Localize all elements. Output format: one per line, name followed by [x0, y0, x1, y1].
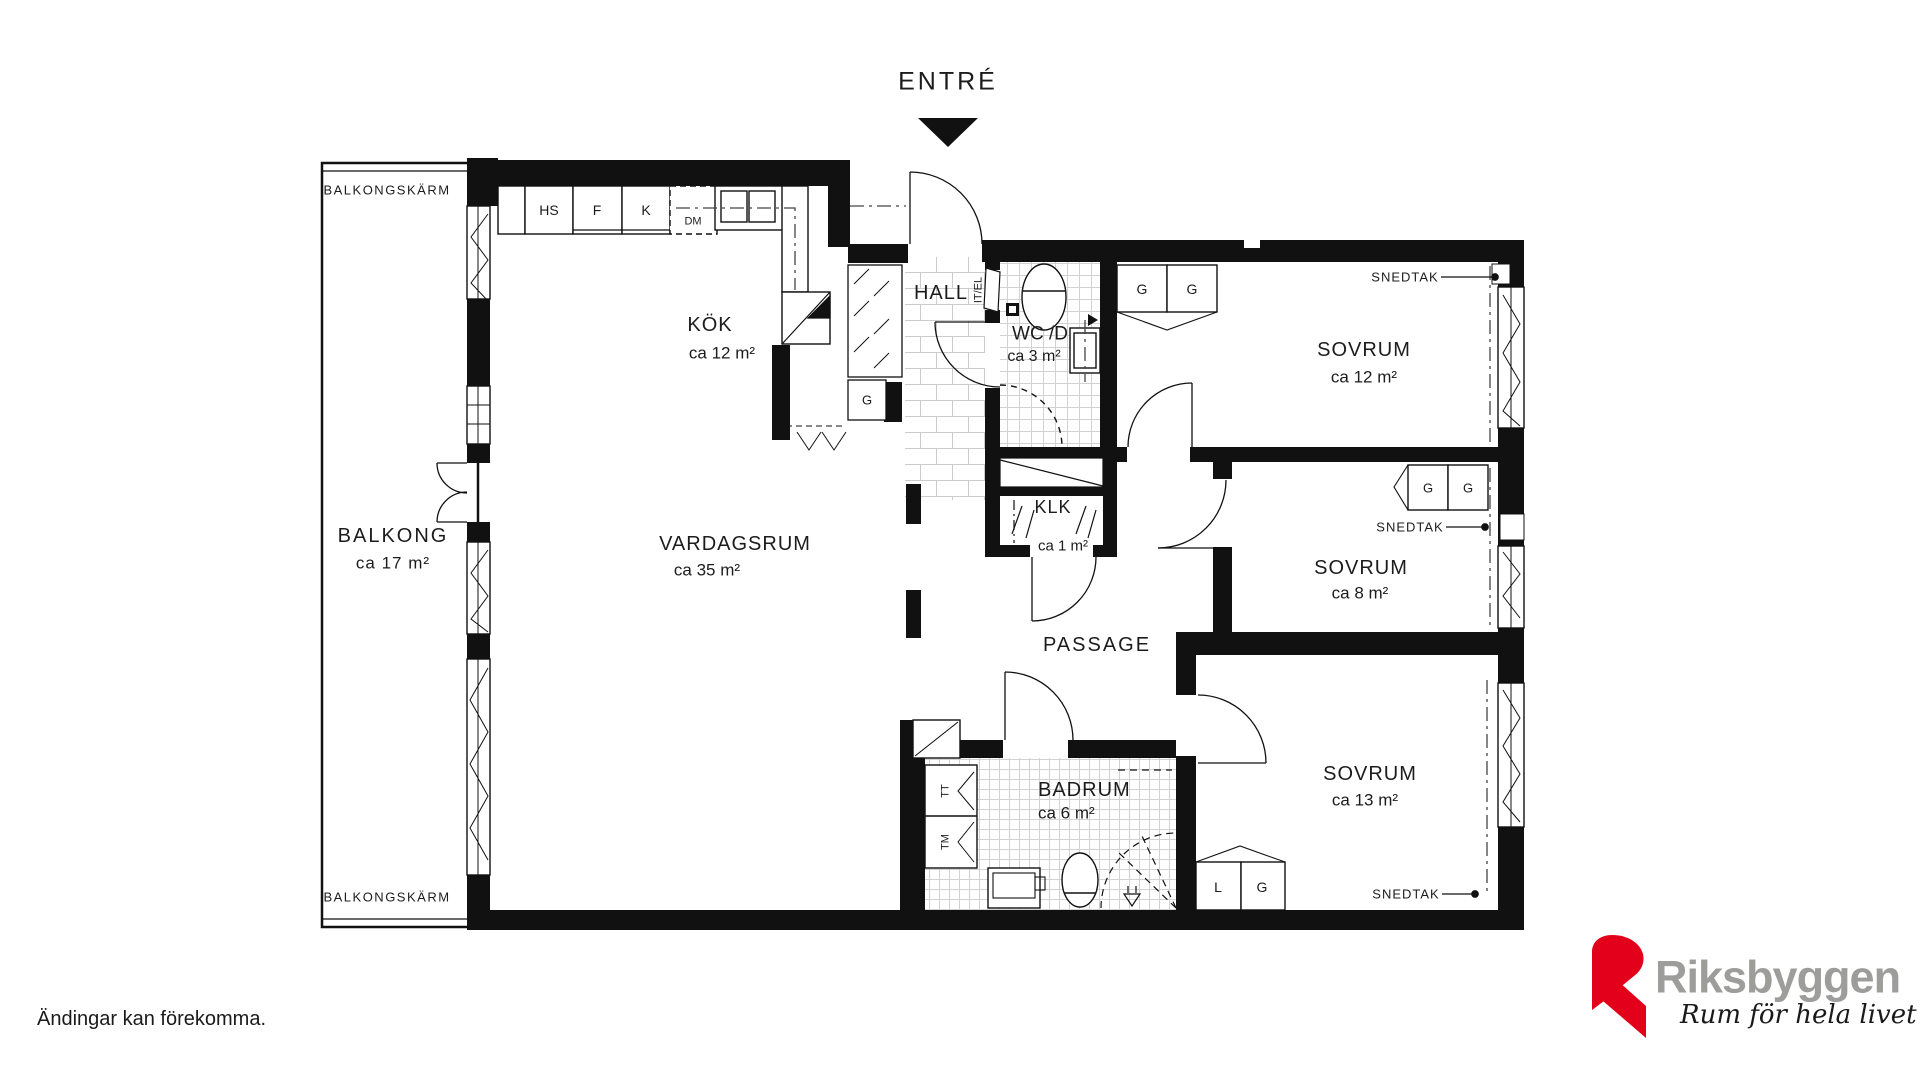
floorplan-drawing — [0, 0, 1920, 1080]
entry-label: ENTRÉ — [898, 70, 998, 95]
wc-toilet — [1022, 264, 1066, 330]
fridge-label: F — [593, 203, 602, 217]
entry-arrow-icon — [918, 118, 978, 147]
badrum-area: ca 6 m² — [1038, 805, 1095, 822]
garderob-s2a-label: G — [1423, 482, 1433, 495]
sovrum-mellan-door — [1158, 480, 1226, 548]
tvattmaskin-label: TM — [941, 834, 952, 850]
badrum-shaft — [913, 720, 960, 758]
badrum-door — [1005, 672, 1073, 740]
snedtak-label-1: SNEDTAK — [1371, 271, 1438, 284]
floorplan-page: ENTRÉ BALKONGSKÄRM BALKONGSKÄRM BALKONG … — [0, 0, 1920, 1080]
sovrum-liten-door — [1198, 695, 1266, 763]
garderob-s1a-label: G — [1137, 282, 1148, 296]
snedtak-label-3: SNEDTAK — [1372, 888, 1439, 901]
riksbyggen-logo-icon — [1592, 935, 1646, 1038]
sovrum-mellan-name: SOVRUM — [1314, 558, 1408, 578]
sovrum-stor-area: ca 12 m² — [1331, 369, 1397, 386]
balcony-door — [437, 463, 467, 522]
kok-name: KÖK — [687, 315, 732, 335]
klk-name: KLK — [1034, 498, 1071, 516]
badrum-name: BADRUM — [1038, 780, 1131, 800]
garderob-hall-label: G — [862, 394, 872, 407]
kok-area: ca 12 m² — [689, 345, 755, 362]
logo-brand-text: Riksbyggen — [1655, 955, 1900, 1000]
klk-area: ca 1 m² — [1038, 539, 1088, 554]
counter-return — [782, 186, 808, 292]
hall-name: HALL — [914, 283, 968, 303]
balcony-screen-label-top: BALKONGSKÄRM — [323, 184, 450, 197]
sovrum-liten-area: ca 13 m² — [1332, 792, 1398, 809]
entry-door — [910, 172, 982, 244]
sovrum-liten-name: SOVRUM — [1323, 764, 1417, 784]
it-el-label: IT/EL — [974, 277, 985, 303]
garderob-s1b-label: G — [1187, 282, 1198, 296]
cabinet-hs-label: HS — [539, 203, 558, 217]
logo-tagline-text: Rum för hela livet — [1680, 1002, 1917, 1028]
garderob-s3-label: G — [1257, 880, 1268, 894]
disclaimer-text: Ändingar kan förekomma. — [37, 1009, 266, 1029]
vardagsrum-name: VARDAGSRUM — [659, 534, 811, 554]
wc-area: ca 3 m² — [1007, 349, 1060, 365]
balcony-name: BALKONG — [338, 526, 449, 546]
sovrum-stor-name: SOVRUM — [1317, 340, 1411, 360]
badrum-basin — [988, 868, 1040, 908]
dishwasher-label: DM — [684, 217, 701, 228]
wc-name: WC /D — [1012, 325, 1068, 344]
passage-name: PASSAGE — [1043, 635, 1151, 655]
torktumlare-label: TT — [941, 784, 952, 797]
linne-s3-label: L — [1214, 880, 1222, 894]
sovrum-mellan-area: ca 8 m² — [1332, 585, 1389, 602]
sovrum-stor-door — [1128, 383, 1192, 447]
garderob-s2b-label: G — [1463, 482, 1473, 495]
balcony-screen-label-bottom: BALKONGSKÄRM — [323, 891, 450, 904]
balcony-area: ca 17 m² — [356, 555, 430, 572]
klk-door — [1032, 557, 1096, 621]
badrum-toilet — [1062, 853, 1098, 907]
vardagsrum-area: ca 35 m² — [674, 562, 740, 579]
snedtak-label-2: SNEDTAK — [1376, 521, 1443, 534]
freezer-label: K — [641, 203, 650, 217]
wall-notch — [1244, 240, 1260, 248]
